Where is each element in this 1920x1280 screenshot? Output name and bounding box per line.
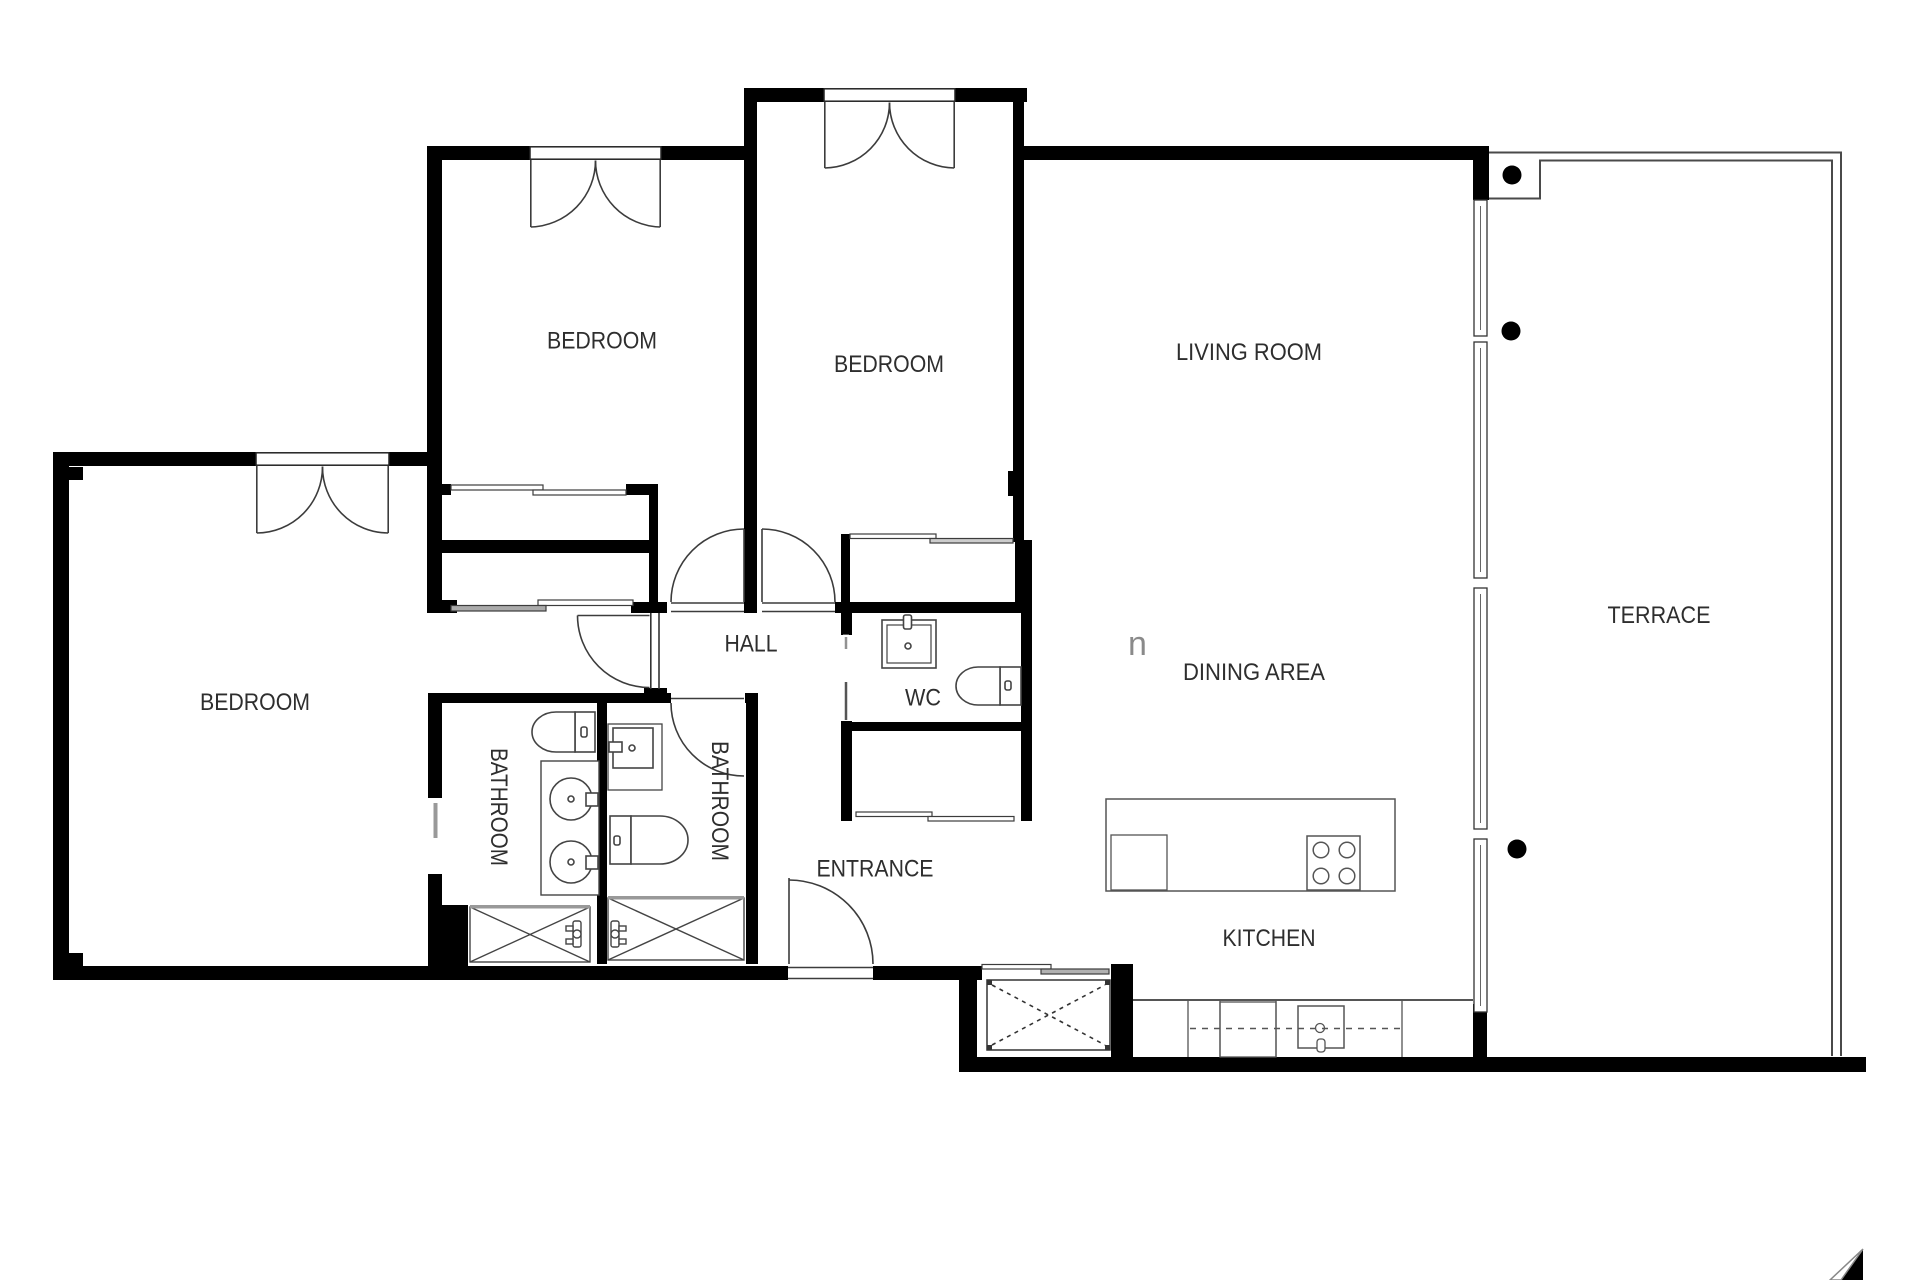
svg-text:BEDROOM: BEDROOM [547,328,657,355]
svg-text:n: n [1128,625,1147,663]
svg-text:ENTRANCE: ENTRANCE [817,856,934,883]
svg-text:BATHROOM: BATHROOM [706,741,733,861]
svg-text:BATHROOM: BATHROOM [485,748,512,866]
svg-text:HALL: HALL [725,631,778,658]
svg-text:BEDROOM: BEDROOM [200,689,310,716]
svg-text:DINING AREA: DINING AREA [1183,659,1325,686]
svg-text:BEDROOM: BEDROOM [834,351,944,378]
svg-text:LIVING ROOM: LIVING ROOM [1176,339,1322,366]
svg-text:TERRACE: TERRACE [1608,602,1711,629]
svg-text:WC: WC [905,685,941,712]
svg-text:KITCHEN: KITCHEN [1223,925,1316,952]
